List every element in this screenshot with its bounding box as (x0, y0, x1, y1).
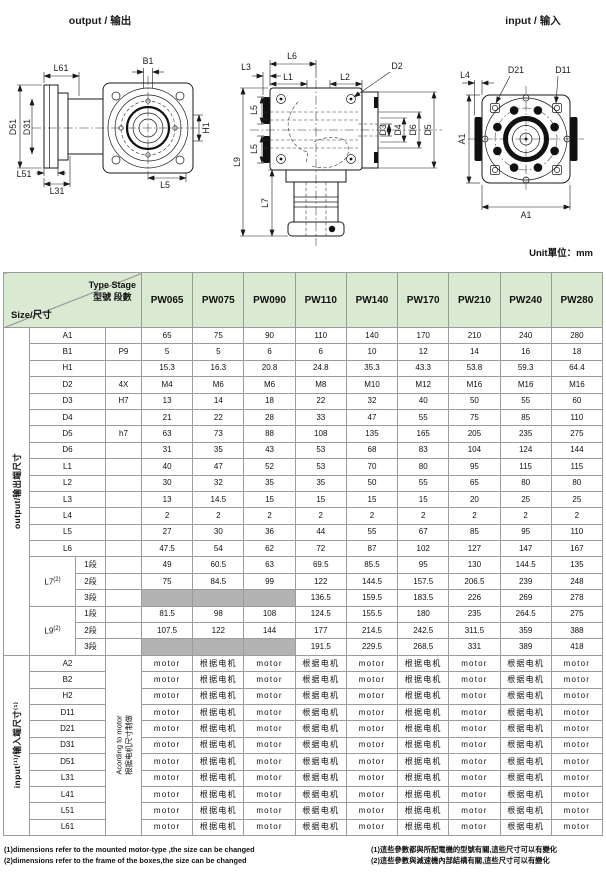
value-cell: 13 (142, 393, 193, 409)
value-cell: 359 (500, 623, 551, 639)
value-cell: 240 (500, 328, 551, 344)
motor-value-cell: 根据电机 (398, 721, 449, 737)
motor-value-cell: motor (142, 737, 193, 753)
motor-value-cell: 根据电机 (295, 688, 346, 704)
stage-sub-cell: 1段 (76, 557, 106, 573)
type-stage-label: Type Stage 型號 段數 (89, 280, 136, 303)
table-row: L7(2)1段4960.56369.585.595130144.5135 (4, 557, 603, 573)
motor-value-cell: motor (244, 819, 295, 835)
value-cell: 85.5 (346, 557, 397, 573)
motor-value-cell: motor (142, 754, 193, 770)
table-row: L51motor根据电机motor根据电机motor根据电机motor根据电机m… (4, 803, 603, 819)
dimensions-table: Type Stage 型號 段數 Size/尺寸 PW065 PW075 PW0… (3, 272, 603, 836)
table-row: D5h7637388108135165205235275 (4, 426, 603, 442)
motor-value-cell: 根据电机 (295, 786, 346, 802)
motor-value-cell: motor (449, 786, 500, 802)
value-cell: 65 (449, 475, 500, 491)
motor-value-cell: motor (449, 672, 500, 688)
table-row: D6313543536883104124144 (4, 442, 603, 458)
value-cell: 159.5 (346, 590, 397, 606)
table-row: L4222222222 (4, 508, 603, 524)
value-cell: M6 (193, 377, 244, 393)
input-view-drawing: input / 输入 L4 (457, 14, 584, 220)
motor-value-cell: 根据电机 (398, 803, 449, 819)
value-cell: 5 (193, 344, 244, 360)
value-cell: 40 (142, 459, 193, 475)
motor-value-cell: 根据电机 (398, 819, 449, 835)
motor-value-cell: motor (346, 737, 397, 753)
value-cell: 2 (142, 508, 193, 524)
value-cell: M16 (500, 377, 551, 393)
table-row: output/输出端尺寸A1657590110140170210240280 (4, 328, 603, 344)
motor-value-cell: 根据电机 (193, 803, 244, 819)
motor-value-cell: motor (449, 754, 500, 770)
value-cell: 331 (449, 639, 500, 655)
value-cell: 70 (346, 459, 397, 475)
motor-value-cell: motor (142, 770, 193, 786)
tolerance-cell (106, 590, 142, 606)
value-cell: 18 (244, 393, 295, 409)
table-row: 2段107.5122144177214.5242.5311.5359388 (4, 623, 603, 639)
motor-value-cell: 根据电机 (500, 655, 551, 671)
motor-value-cell: 根据电机 (500, 688, 551, 704)
value-cell: 147 (500, 541, 551, 557)
value-cell: 144 (244, 623, 295, 639)
value-cell (193, 590, 244, 606)
value-cell: 63 (244, 557, 295, 573)
tolerance-cell (106, 409, 142, 425)
tolerance-cell (106, 442, 142, 458)
value-cell: 191.5 (295, 639, 346, 655)
motor-value-cell: 根据电机 (500, 704, 551, 720)
value-cell: 80 (398, 459, 449, 475)
value-cell: 53 (295, 442, 346, 458)
value-cell: 214.5 (346, 623, 397, 639)
motor-value-cell: motor (449, 688, 500, 704)
dim-label-l51: L51 (17, 169, 32, 179)
motor-value-cell: motor (244, 737, 295, 753)
size-name-cell: L51 (30, 803, 106, 819)
value-cell: 21 (142, 409, 193, 425)
motor-value-cell: 根据电机 (398, 688, 449, 704)
table-header-row: Type Stage 型號 段數 Size/尺寸 PW065 PW075 PW0… (4, 273, 603, 328)
table-head: Type Stage 型號 段數 Size/尺寸 PW065 PW075 PW0… (4, 273, 603, 328)
table-row: B2motor根据电机motor根据电机motor根据电机motor根据电机mo… (4, 672, 603, 688)
motor-value-cell: motor (551, 803, 602, 819)
size-name-cell: L61 (30, 819, 106, 835)
motor-value-cell: 根据电机 (193, 786, 244, 802)
dim-label-h1: H1 (201, 122, 211, 133)
motor-value-cell: 根据电机 (398, 655, 449, 671)
motor-value-cell: motor (142, 819, 193, 835)
output-group-label: output/输出端尺寸 (12, 453, 21, 529)
value-cell: 35 (295, 475, 346, 491)
value-cell: 6 (244, 344, 295, 360)
value-cell: 67 (398, 524, 449, 540)
value-cell: 24.8 (295, 360, 346, 376)
value-cell (244, 639, 295, 655)
tolerance-cell (106, 573, 142, 589)
value-cell: 144.5 (500, 557, 551, 573)
value-cell: 55 (398, 409, 449, 425)
value-cell: 388 (551, 623, 602, 639)
size-name-cell: D11 (30, 704, 106, 720)
value-cell: 80 (551, 475, 602, 491)
dim-label-a1-side: A1 (457, 134, 467, 145)
value-cell: 135 (551, 557, 602, 573)
according-to-motor-cell: Acording to motor根据电机尺寸制做 (106, 655, 142, 835)
value-cell: 15 (295, 491, 346, 507)
value-cell: 98 (193, 606, 244, 622)
value-cell: 10 (346, 344, 397, 360)
motor-value-cell: 根据电机 (295, 672, 346, 688)
value-cell: 167 (551, 541, 602, 557)
column-header-pw210: PW210 (449, 273, 500, 328)
size-name-cell: D5 (30, 426, 106, 442)
value-cell: 85 (449, 524, 500, 540)
value-cell: 64.4 (551, 360, 602, 376)
value-cell: 47 (346, 409, 397, 425)
motor-value-cell: motor (346, 655, 397, 671)
value-cell: 15.3 (142, 360, 193, 376)
value-cell: M8 (295, 377, 346, 393)
dim-label-l5-lower: L5 (249, 144, 259, 154)
value-cell: 53 (295, 459, 346, 475)
value-cell: 16 (500, 344, 551, 360)
motor-value-cell: 根据电机 (398, 704, 449, 720)
motor-value-cell: motor (551, 819, 602, 835)
dim-label-l5: L5 (160, 180, 170, 190)
tolerance-cell (106, 328, 142, 344)
dim-label-l61: L61 (54, 63, 69, 73)
according-to-motor-note: Acording to motor根据电机尺寸制做 (114, 715, 134, 775)
motor-value-cell: motor (244, 786, 295, 802)
size-name-cell: D31 (30, 737, 106, 753)
value-cell: 122 (295, 573, 346, 589)
tolerance-cell (106, 475, 142, 491)
value-cell: 242.5 (398, 623, 449, 639)
motor-value-cell: 根据电机 (295, 754, 346, 770)
size-name-cell: B1 (30, 344, 106, 360)
output-group-cell: output/输出端尺寸 (4, 328, 30, 656)
value-cell: 95 (500, 524, 551, 540)
value-cell: 43 (244, 442, 295, 458)
column-header-pw280: PW280 (551, 273, 602, 328)
value-cell: 83 (398, 442, 449, 458)
motor-value-cell: motor (449, 737, 500, 753)
motor-value-cell: 根据电机 (193, 754, 244, 770)
tolerance-cell (106, 541, 142, 557)
value-cell: 16.3 (193, 360, 244, 376)
dim-label-d51: D51 (8, 119, 18, 135)
size-name-cell: L7(2) (30, 557, 76, 606)
motor-value-cell: motor (449, 803, 500, 819)
size-name-cell: D4 (30, 409, 106, 425)
value-cell: 115 (551, 459, 602, 475)
tolerance-cell (106, 557, 142, 573)
value-cell: 87 (346, 541, 397, 557)
motor-value-cell: 根据电机 (500, 786, 551, 802)
value-cell: 50 (449, 393, 500, 409)
dim-label-l2: L2 (340, 72, 350, 82)
value-cell: 85 (500, 409, 551, 425)
value-cell: 22 (193, 409, 244, 425)
motor-value-cell: 根据电机 (295, 770, 346, 786)
value-cell: 2 (193, 508, 244, 524)
value-cell: 47 (193, 459, 244, 475)
dim-label-l31: L31 (50, 186, 65, 196)
value-cell: 33 (295, 409, 346, 425)
column-header-pw140: PW140 (346, 273, 397, 328)
value-cell: 280 (551, 328, 602, 344)
motor-value-cell: motor (142, 704, 193, 720)
value-cell: 115 (500, 459, 551, 475)
motor-value-cell: motor (244, 704, 295, 720)
motor-value-cell: 根据电机 (500, 754, 551, 770)
stage-sub-cell: 2段 (76, 573, 106, 589)
motor-value-cell: 根据电机 (398, 786, 449, 802)
value-cell: 50 (346, 475, 397, 491)
value-cell: 389 (500, 639, 551, 655)
dim-label-d11: D11 (555, 65, 571, 75)
value-cell: 177 (295, 623, 346, 639)
value-cell: 127 (449, 541, 500, 557)
motor-value-cell: 根据电机 (295, 721, 346, 737)
value-cell: 80 (500, 475, 551, 491)
value-cell: 124 (500, 442, 551, 458)
tolerance-cell (106, 508, 142, 524)
size-name-cell: D51 (30, 754, 106, 770)
input-view-title: input / 输入 (505, 14, 561, 27)
tolerance-cell: P9 (106, 344, 142, 360)
value-cell: 88 (244, 426, 295, 442)
motor-value-cell: motor (142, 655, 193, 671)
dim-label-d3: D3 (378, 124, 388, 135)
value-cell: 210 (449, 328, 500, 344)
value-cell: 60.5 (193, 557, 244, 573)
table-row: D21motor根据电机motor根据电机motor根据电机motor根据电机m… (4, 721, 603, 737)
dim-label-d5: D5 (423, 124, 433, 135)
motor-value-cell: motor (449, 721, 500, 737)
motor-value-cell: motor (449, 655, 500, 671)
value-cell: 52 (244, 459, 295, 475)
value-cell: 235 (449, 606, 500, 622)
value-cell: 20 (449, 491, 500, 507)
motor-value-cell: motor (346, 688, 397, 704)
value-cell: 235 (500, 426, 551, 442)
value-cell: 5 (142, 344, 193, 360)
value-cell: 18 (551, 344, 602, 360)
motor-value-cell: 根据电机 (193, 688, 244, 704)
value-cell: 110 (551, 524, 602, 540)
table-row: 3段136.5159.5183.5226269278 (4, 590, 603, 606)
table-row: 2段7584.599122144.5157.5206.5239248 (4, 573, 603, 589)
footnote-en-1: (1)dimensions refer to the mounted motor… (4, 844, 255, 855)
size-name-cell: D2 (30, 377, 106, 393)
motor-value-cell: motor (244, 754, 295, 770)
value-cell: 25 (500, 491, 551, 507)
motor-value-cell: 根据电机 (398, 754, 449, 770)
motor-value-cell: 根据电机 (500, 770, 551, 786)
value-cell: 72 (295, 541, 346, 557)
value-cell: 15 (244, 491, 295, 507)
value-cell: 31 (142, 442, 193, 458)
footnotes-chinese: (1)這些參數都與所配電機的型號有關,這些尺寸可以有變化 (2)這些參數與減速機… (371, 844, 557, 866)
table-row: L140475253708095115115 (4, 459, 603, 475)
output-view-drawing: output / 输出 L61 B1 (8, 14, 211, 196)
motor-value-cell: motor (551, 770, 602, 786)
size-name-cell: L1 (30, 459, 106, 475)
value-cell: 55 (500, 393, 551, 409)
dim-label-d6: D6 (408, 124, 418, 135)
column-header-pw090: PW090 (244, 273, 295, 328)
size-name-cell: L31 (30, 770, 106, 786)
value-cell: 268.5 (398, 639, 449, 655)
value-cell: 130 (449, 557, 500, 573)
motor-value-cell: motor (346, 770, 397, 786)
table-row: L52730364455678595110 (4, 524, 603, 540)
motor-value-cell: 根据电机 (193, 737, 244, 753)
value-cell: 99 (244, 573, 295, 589)
motor-value-cell: motor (244, 803, 295, 819)
value-cell: 75 (142, 573, 193, 589)
value-cell: 14 (449, 344, 500, 360)
tolerance-cell (106, 606, 142, 622)
value-cell: 15 (346, 491, 397, 507)
tolerance-cell (106, 360, 142, 376)
motor-value-cell: 根据电机 (295, 819, 346, 835)
size-name-cell: L9(2) (30, 606, 76, 655)
size-name-cell: L41 (30, 786, 106, 802)
table-row: B1P955661012141618 (4, 344, 603, 360)
value-cell: 55 (398, 475, 449, 491)
value-cell: 28 (244, 409, 295, 425)
value-cell: 95 (449, 459, 500, 475)
footnote-zh-2: (2)這些參數與減速機內部結構有關,這些尺寸可以有變化 (371, 855, 557, 866)
motor-value-cell: motor (346, 803, 397, 819)
value-cell: 90 (244, 328, 295, 344)
value-cell: 73 (193, 426, 244, 442)
value-cell: 36 (244, 524, 295, 540)
table-row: D24XM4M6M6M8M10M12M16M16M16 (4, 377, 603, 393)
value-cell: 35.3 (346, 360, 397, 376)
dim-label-l4: L4 (460, 70, 470, 80)
motor-value-cell: motor (346, 754, 397, 770)
table-row: D11motor根据电机motor根据电机motor根据电机motor根据电机m… (4, 704, 603, 720)
value-cell: 32 (193, 475, 244, 491)
dim-label-l5-upper: L5 (249, 105, 259, 115)
motor-value-cell: 根据电机 (193, 704, 244, 720)
value-cell: 20.8 (244, 360, 295, 376)
motor-value-cell: motor (551, 754, 602, 770)
table-row: L41motor根据电机motor根据电机motor根据电机motor根据电机m… (4, 786, 603, 802)
motor-value-cell: motor (244, 721, 295, 737)
motor-value-cell: 根据电机 (500, 721, 551, 737)
column-header-pw065: PW065 (142, 273, 193, 328)
motor-value-cell: motor (346, 819, 397, 835)
value-cell: 275 (551, 426, 602, 442)
motor-value-cell: motor (346, 672, 397, 688)
value-cell: 84.5 (193, 573, 244, 589)
value-cell: 14.5 (193, 491, 244, 507)
value-cell: M6 (244, 377, 295, 393)
size-name-cell: H2 (30, 688, 106, 704)
motor-value-cell: motor (244, 770, 295, 786)
value-cell: 102 (398, 541, 449, 557)
motor-value-cell: 根据电机 (295, 655, 346, 671)
dim-label-d31: D31 (22, 119, 32, 135)
value-cell: 165 (398, 426, 449, 442)
table-row: L31314.515151515202525 (4, 491, 603, 507)
value-cell: 110 (295, 328, 346, 344)
value-cell (142, 590, 193, 606)
value-cell: 47.5 (142, 541, 193, 557)
motor-value-cell: motor (551, 688, 602, 704)
motor-value-cell: 根据电机 (500, 819, 551, 835)
motor-value-cell: 根据电机 (500, 803, 551, 819)
tolerance-cell (106, 623, 142, 639)
table-row: L61motor根据电机motor根据电机motor根据电机motor根据电机m… (4, 819, 603, 835)
motor-value-cell: 根据电机 (295, 803, 346, 819)
stage-sub-cell: 1段 (76, 606, 106, 622)
motor-value-cell: 根据电机 (295, 704, 346, 720)
value-cell: 205 (449, 426, 500, 442)
value-cell: 60 (551, 393, 602, 409)
value-cell: M10 (346, 377, 397, 393)
value-cell: 2 (346, 508, 397, 524)
footnote-zh-1: (1)這些參數都與所配電機的型號有關,這些尺寸可以有變化 (371, 844, 557, 855)
size-label: Size/尺寸 (11, 307, 52, 321)
value-cell: 44 (295, 524, 346, 540)
input-group-cell: input⁽¹⁾/输入端尺寸⁽¹⁾ (4, 655, 30, 835)
motor-value-cell: motor (142, 672, 193, 688)
motor-value-cell: 根据电机 (398, 770, 449, 786)
value-cell: 2 (551, 508, 602, 524)
tolerance-cell: 4X (106, 377, 142, 393)
dim-label-d2: D2 (391, 61, 402, 71)
size-name-cell: D6 (30, 442, 106, 458)
value-cell: 63 (142, 426, 193, 442)
value-cell: 62 (244, 541, 295, 557)
motor-value-cell: motor (346, 721, 397, 737)
value-cell: 140 (346, 328, 397, 344)
table-row: D31motor根据电机motor根据电机motor根据电机motor根据电机m… (4, 737, 603, 753)
dim-label-a1-bottom: A1 (521, 210, 532, 220)
value-cell: 183.5 (398, 590, 449, 606)
value-cell: 13 (142, 491, 193, 507)
table-body: output/输出端尺寸A1657590110140170210240280B1… (4, 328, 603, 836)
motor-value-cell: motor (551, 721, 602, 737)
value-cell: 104 (449, 442, 500, 458)
value-cell: 49 (142, 557, 193, 573)
size-name-cell: H1 (30, 360, 106, 376)
value-cell: 75 (193, 328, 244, 344)
footnote-en-2: (2)dimensions refer to the frame of the … (4, 855, 255, 866)
motor-value-cell: 根据电机 (193, 819, 244, 835)
value-cell: 2 (500, 508, 551, 524)
motor-value-cell: 根据电机 (398, 737, 449, 753)
value-cell: 108 (295, 426, 346, 442)
value-cell (193, 639, 244, 655)
size-name-cell: L4 (30, 508, 106, 524)
motor-value-cell: motor (346, 704, 397, 720)
value-cell: 54 (193, 541, 244, 557)
tolerance-cell (106, 459, 142, 475)
value-cell: 108 (244, 606, 295, 622)
motor-value-cell: motor (142, 803, 193, 819)
value-cell: 206.5 (449, 573, 500, 589)
value-cell: 2 (449, 508, 500, 524)
